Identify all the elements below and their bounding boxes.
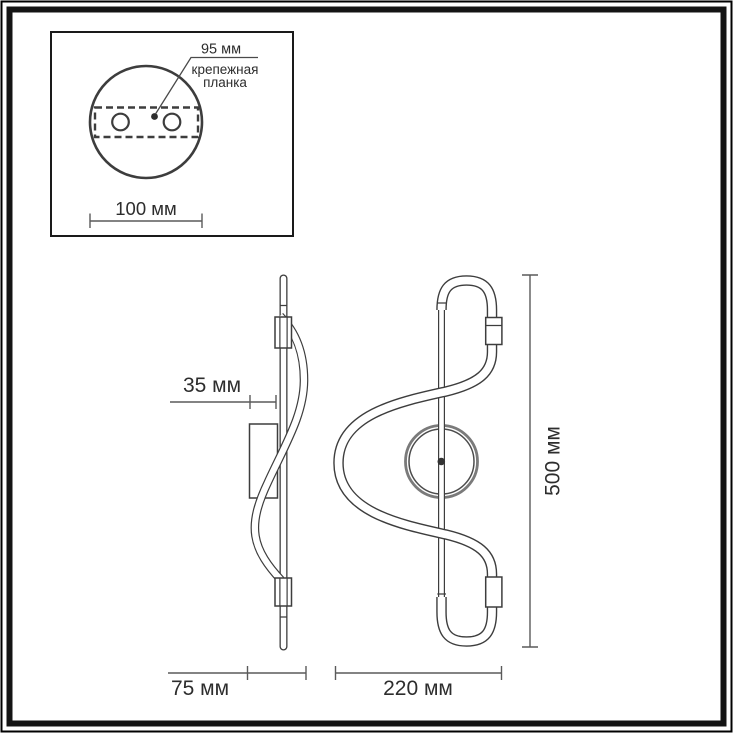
technical-drawing-page: 95 мм крепежная планка 100 мм 35 мм [0,0,733,733]
mounting-plate-inset: 95 мм крепежная планка 100 мм [51,32,293,236]
dim-95-label: 95 мм [201,42,241,58]
dim-220-label: 220 мм [383,677,453,700]
tube-front-outline [339,281,493,642]
clamp-top-side [275,317,292,348]
dim-75-label: 75 мм [171,677,229,700]
connector-bottom [486,577,502,607]
lamp-side-view: 35 мм 75 мм [168,279,306,701]
clamp-bottom-side [275,578,292,606]
lamp-dimension-drawing: 95 мм крепежная планка 100 мм 35 мм [0,0,733,733]
dim-500-label: 500 мм [542,426,565,496]
leader-dot [151,113,158,120]
dim-100-label: 100 мм [115,198,176,219]
dim-35-label: 35 мм [183,374,241,397]
mounting-bar-label-line2: планка [203,75,247,90]
tube-front-fill [339,281,493,642]
lamp-front-view: 500 мм 220 мм [336,275,565,700]
plate-center-dot [438,458,446,466]
connector-top [486,318,502,345]
